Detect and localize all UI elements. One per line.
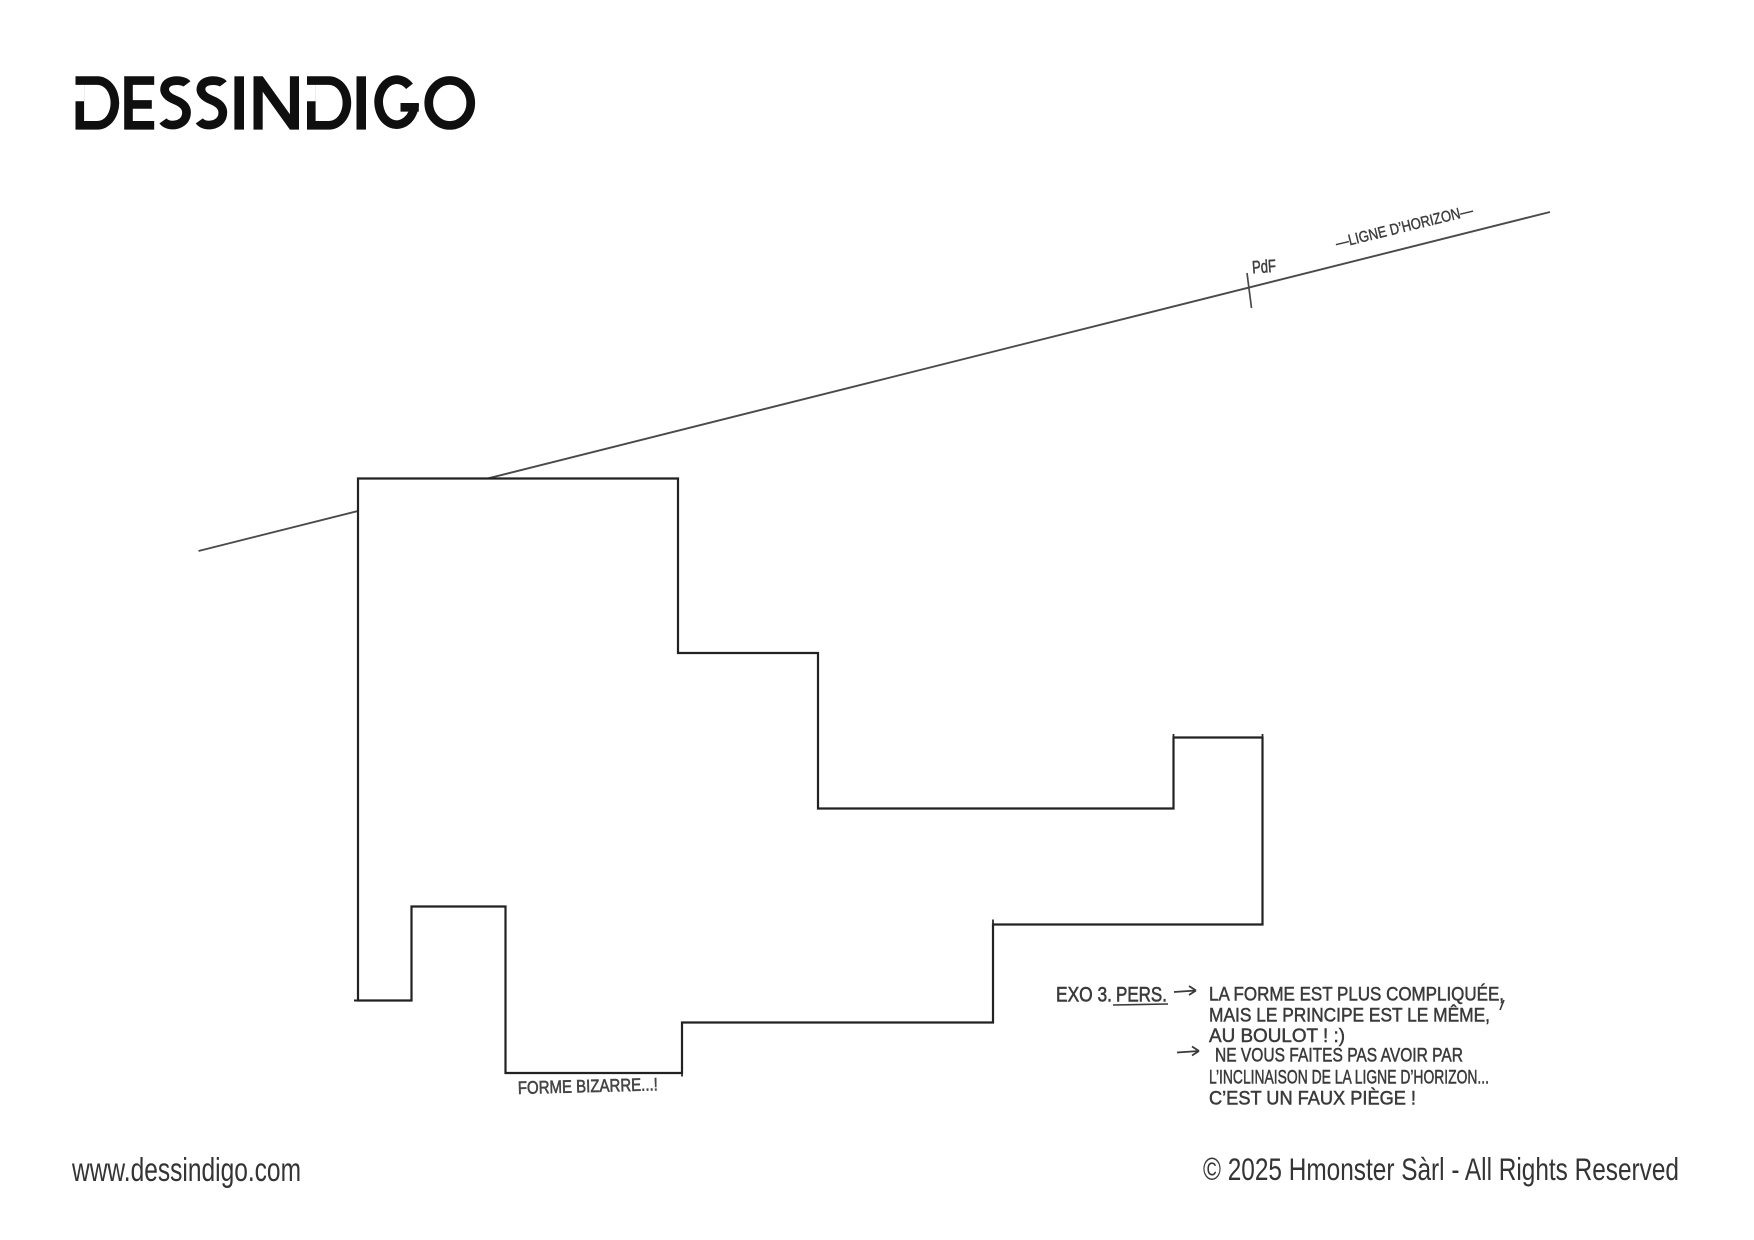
svg-text:© 2025 Hmonster Sàrl - All Rig: © 2025 Hmonster Sàrl - All Rights Reserv…: [1203, 1151, 1679, 1187]
svg-text:NE VOUS FAITES PAS AVOIR PAR: NE VOUS FAITES PAS AVOIR PAR: [1215, 1044, 1463, 1066]
svg-text:FORME BIZARRE...!: FORME BIZARRE...!: [518, 1074, 658, 1098]
svg-text:LA FORME EST PLUS COMPLIQUÉE,: LA FORME EST PLUS COMPLIQUÉE,: [1209, 983, 1504, 1006]
svg-text:www.dessindigo.com: www.dessindigo.com: [71, 1152, 301, 1189]
svg-text:PERS.: PERS.: [1116, 984, 1167, 1007]
svg-text:EXO 3.: EXO 3.: [1056, 984, 1112, 1007]
svg-text:L’INCLINAISON DE LA LIGNE D’HO: L’INCLINAISON DE LA LIGNE D’HORIZON...: [1209, 1067, 1489, 1089]
svg-text:MAIS LE PRINCIPE EST LE MÊME,: MAIS LE PRINCIPE EST LE MÊME,: [1209, 1003, 1490, 1026]
svg-text:PdF: PdF: [1251, 256, 1276, 278]
svg-text:—LIGNE D’HORIZON—: —LIGNE D’HORIZON—: [1334, 202, 1475, 252]
svg-text:C’EST UN FAUX PIÈGE !: C’EST UN FAUX PIÈGE !: [1209, 1086, 1416, 1109]
